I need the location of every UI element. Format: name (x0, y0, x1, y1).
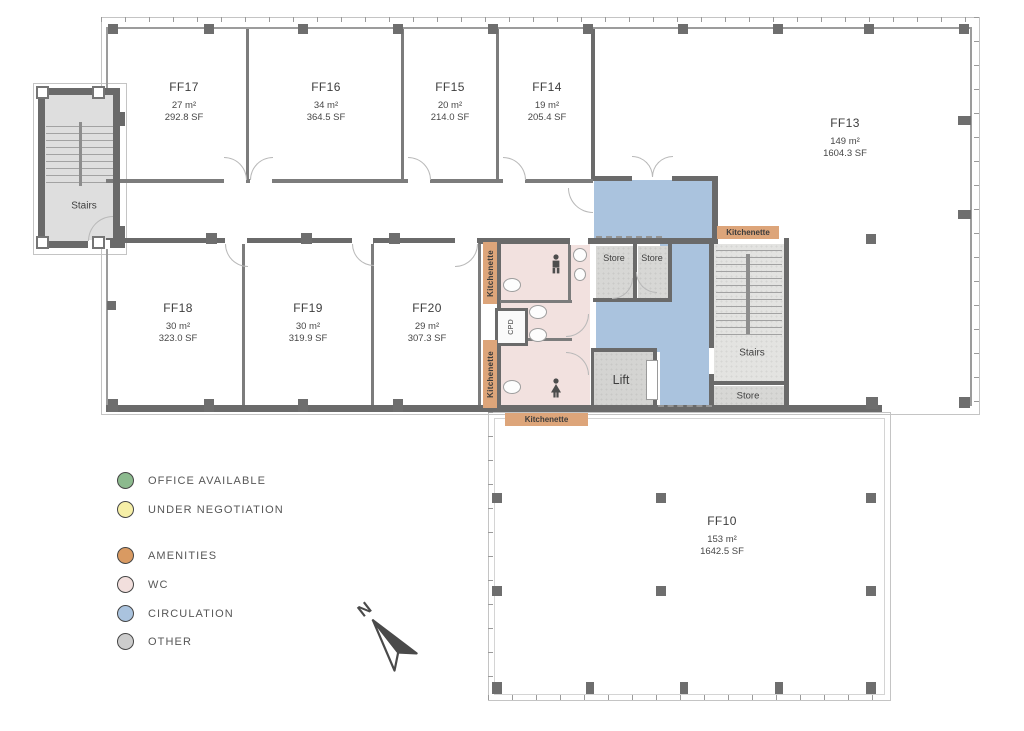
column (108, 24, 118, 34)
wall (38, 88, 120, 95)
corner-post (92, 86, 105, 99)
column (656, 493, 666, 503)
room-name: FF15 (431, 80, 470, 94)
door-gap (455, 237, 477, 244)
column (393, 399, 403, 412)
wall (401, 29, 404, 179)
stair-rail (746, 254, 750, 334)
legend-swatch-orange (117, 547, 134, 564)
column (586, 682, 594, 694)
dashed-threshold (596, 236, 662, 238)
wall (591, 348, 657, 352)
room-area: 30 m²323.0 SF (159, 321, 198, 345)
column (107, 301, 116, 310)
urinal-icon (574, 268, 586, 281)
wall (496, 29, 499, 179)
kitchenette-bar: Kitchenette (483, 340, 497, 408)
legend-item-wc: WC (117, 576, 169, 593)
column (680, 682, 688, 694)
stair-rail (79, 122, 82, 186)
wall (784, 238, 789, 412)
wall (242, 243, 245, 405)
wall (113, 226, 125, 248)
room-area: 29 m²307.3 SF (408, 321, 447, 345)
store-3-label: Store (737, 391, 760, 402)
room-label-ff18: FF18 30 m²323.0 SF (159, 301, 198, 345)
building-outline-lower-inner (494, 418, 885, 695)
room-label-ff19: FF19 30 m²319.9 SF (289, 301, 328, 345)
room-label-ff13: FF13 149 m²1604.3 SF (823, 116, 867, 160)
room-name: FF16 (307, 80, 346, 94)
column (204, 399, 214, 412)
column (866, 234, 876, 244)
column (108, 399, 118, 412)
legend-item-amenities: AMENITIES (117, 547, 217, 564)
room-area: 27 m²292.8 SF (165, 100, 204, 124)
wall (709, 238, 714, 412)
door-gap (225, 237, 247, 244)
wall (668, 244, 672, 302)
column (583, 24, 593, 34)
column (959, 397, 970, 408)
room-label-ff17: FF17 27 m²292.8 SF (165, 80, 204, 124)
stairs-right-label: Stairs (739, 348, 765, 359)
legend-swatch-yellow (117, 501, 134, 518)
room-name: FF17 (165, 80, 204, 94)
lift-label: Lift (613, 373, 630, 387)
legend-swatch-gray (117, 633, 134, 650)
zone-circulation-upper (594, 180, 715, 240)
door-gap (709, 348, 714, 374)
kitchenette-bar: Kitchenette (483, 242, 497, 304)
female-wc-icon (550, 378, 562, 398)
column (204, 24, 214, 34)
column (301, 233, 312, 244)
room-area: 34 m²364.5 SF (307, 100, 346, 124)
room-area: 30 m²319.9 SF (289, 321, 328, 345)
room-area: 19 m²205.4 SF (528, 100, 567, 124)
cpd-room: CPD (495, 308, 528, 346)
column (488, 24, 498, 34)
room-label-ff10: FF10 153 m²1642.5 SF (700, 514, 744, 558)
wall (591, 29, 595, 179)
column (958, 116, 971, 125)
wall (568, 244, 571, 300)
wall (371, 243, 374, 405)
column (656, 586, 666, 596)
legend-label: UNDER NEGOTIATION (148, 504, 284, 516)
room-name: FF19 (289, 301, 328, 315)
corner-post (36, 86, 49, 99)
column (389, 233, 400, 244)
toilet-icon (573, 248, 587, 262)
column (959, 24, 969, 34)
legend-label: AMENITIES (148, 550, 217, 562)
kitchenette-label: Kitchenette (525, 415, 569, 424)
boundary-ticks (488, 412, 493, 699)
boundary-ticks (974, 17, 979, 413)
room-name: FF20 (408, 301, 447, 315)
wall (591, 348, 594, 405)
boundary-ticks (488, 695, 889, 700)
wall (593, 298, 672, 302)
kitchenette-bar: Kitchenette (505, 413, 588, 426)
toilet-icon (529, 328, 547, 342)
wall (38, 88, 45, 248)
wall (479, 238, 717, 244)
column (298, 399, 308, 412)
cpd-label: CPD (508, 319, 515, 335)
room-label-ff16: FF16 34 m²364.5 SF (307, 80, 346, 124)
wall (478, 243, 481, 405)
legend-swatch-green (117, 472, 134, 489)
lift-door-recess (646, 360, 658, 400)
column (206, 233, 217, 244)
corner-post (36, 236, 49, 249)
column (864, 24, 874, 34)
column (866, 682, 876, 694)
boundary-ticks (101, 17, 978, 22)
toilet-icon (529, 305, 547, 319)
wall (106, 27, 972, 29)
kitchenette-label: Kitchenette (486, 351, 495, 398)
column (958, 210, 971, 219)
legend-item-under-negotiation: UNDER NEGOTIATION (117, 501, 284, 518)
legend-swatch-blue (117, 605, 134, 622)
male-wc-icon (550, 254, 562, 274)
wall (113, 112, 125, 126)
column (866, 397, 878, 409)
column (298, 24, 308, 34)
floor-plan-canvas: Kitchenette Kitchenette Kitchenette Kitc… (0, 0, 1024, 731)
north-arrow: N (338, 586, 437, 693)
column (866, 493, 876, 503)
room-label-ff15: FF15 20 m²214.0 SF (431, 80, 470, 124)
room-name: FF14 (528, 80, 567, 94)
column (678, 24, 688, 34)
column (492, 586, 502, 596)
column (492, 682, 502, 694)
legend-swatch-pink (117, 576, 134, 593)
store-1-label: Store (603, 253, 625, 263)
room-label-ff14: FF14 19 m²205.4 SF (528, 80, 567, 124)
dashed-threshold (658, 405, 712, 407)
corner-post (92, 236, 105, 249)
kitchenette-label: Kitchenette (486, 250, 495, 297)
column (866, 586, 876, 596)
room-name: FF13 (823, 116, 867, 130)
legend-label: OFFICE AVAILABLE (148, 475, 266, 487)
door-gap (352, 237, 373, 244)
zone-circulation-mid (596, 300, 662, 352)
wall (714, 381, 784, 385)
legend-item-other: OTHER (117, 633, 192, 650)
kitchenette-bar: Kitchenette (717, 226, 779, 239)
column (775, 682, 783, 694)
room-area: 153 m²1642.5 SF (700, 534, 744, 558)
wall (500, 300, 572, 303)
toilet-icon (503, 380, 521, 394)
wall (593, 176, 632, 181)
room-name: FF10 (700, 514, 744, 528)
legend-label: CIRCULATION (148, 608, 234, 620)
kitchenette-label: Kitchenette (726, 228, 770, 237)
room-label-ff20: FF20 29 m²307.3 SF (408, 301, 447, 345)
toilet-icon (503, 278, 521, 292)
column (393, 24, 403, 34)
legend-item-office-available: OFFICE AVAILABLE (117, 472, 266, 489)
door-gap (570, 237, 588, 245)
wall (246, 29, 249, 179)
column (492, 493, 502, 503)
column (773, 24, 783, 34)
legend-item-circulation: CIRCULATION (117, 605, 234, 622)
room-area: 20 m²214.0 SF (431, 100, 470, 124)
room-area: 149 m²1604.3 SF (823, 136, 867, 160)
store-2-label: Store (641, 253, 663, 263)
stairs-left-label: Stairs (71, 201, 97, 212)
room-name: FF18 (159, 301, 198, 315)
legend-label: OTHER (148, 636, 192, 648)
legend-label: WC (148, 579, 169, 591)
